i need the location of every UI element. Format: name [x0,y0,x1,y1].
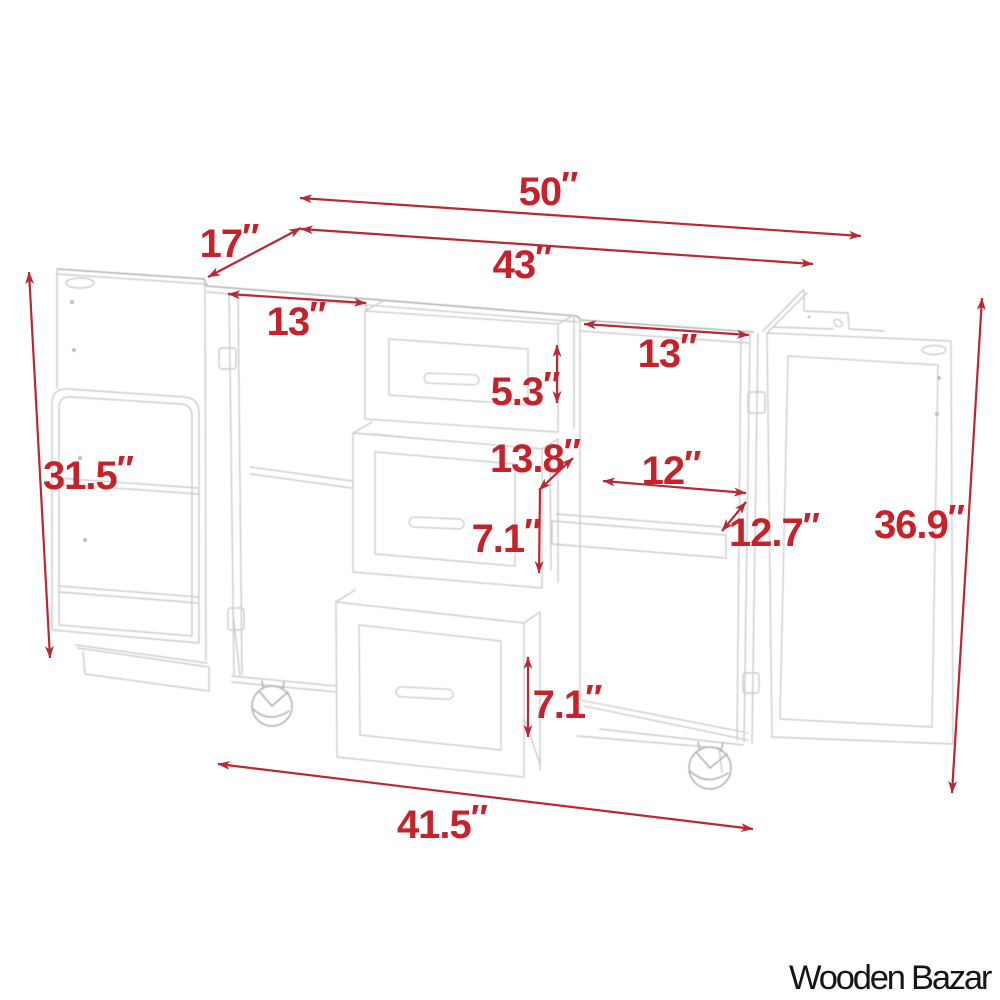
svg-text:Wooden Bazar: Wooden Bazar [789,959,992,997]
svg-text:13″: 13″ [638,326,698,376]
svg-text:13.8″: 13.8″ [490,431,581,481]
svg-text:50″: 50″ [519,164,579,214]
svg-text:31.5″: 31.5″ [43,448,134,498]
svg-text:43″: 43″ [493,237,553,287]
svg-text:13″: 13″ [267,294,327,344]
svg-text:17″: 17″ [200,216,260,266]
svg-text:7.1″: 7.1″ [533,677,603,727]
svg-text:41.5″: 41.5″ [397,797,488,847]
svg-text:12″: 12″ [642,443,702,493]
